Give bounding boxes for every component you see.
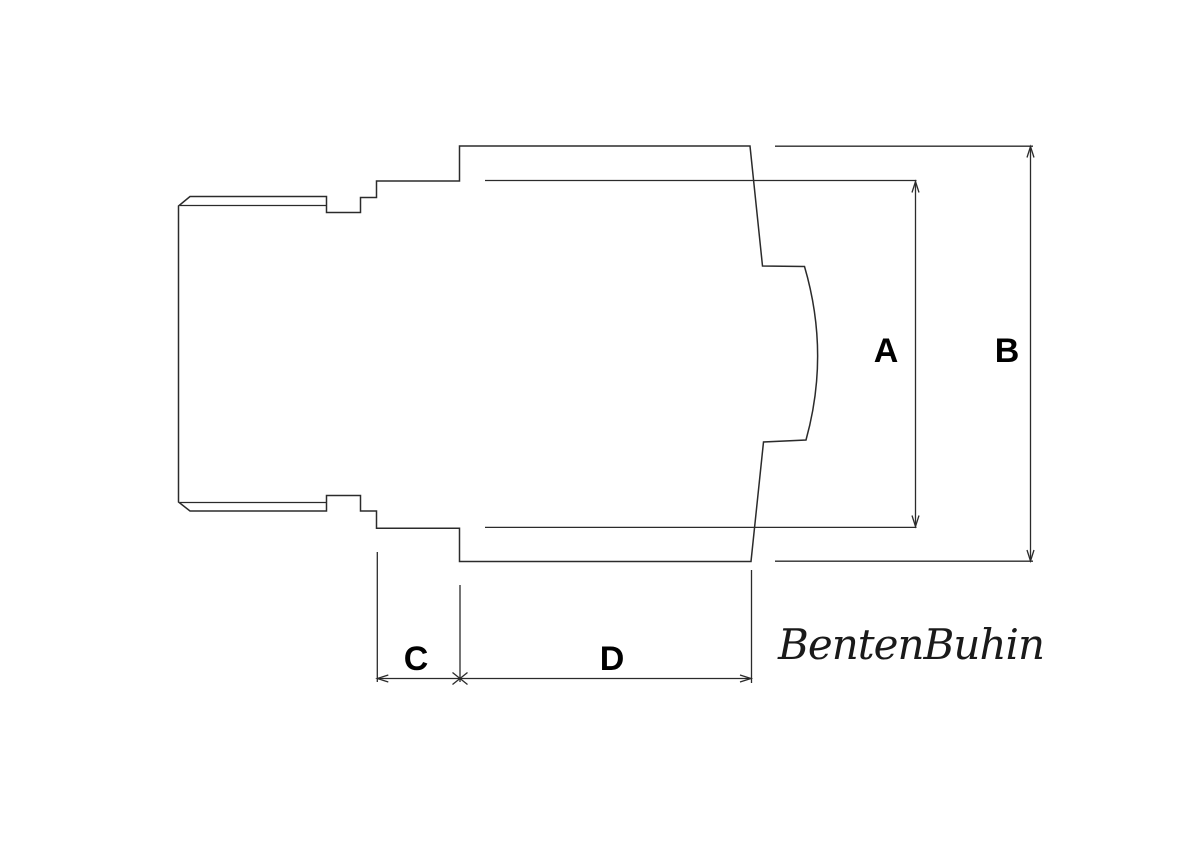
part-outline <box>179 146 818 562</box>
drawing-canvas: A B C D BentenBuhin <box>0 0 1200 848</box>
dimension-a-group <box>485 181 919 528</box>
dimension-label-c: C <box>404 642 429 676</box>
technical-drawing-svg <box>0 0 1200 848</box>
part-outline-group <box>179 146 818 562</box>
dimension-label-a: A <box>874 334 899 368</box>
brand-signature: BentenBuhin <box>778 624 1044 666</box>
dimension-label-d: D <box>600 642 625 676</box>
dimension-label-b: B <box>995 334 1020 368</box>
dimension-cd-group <box>377 552 751 685</box>
